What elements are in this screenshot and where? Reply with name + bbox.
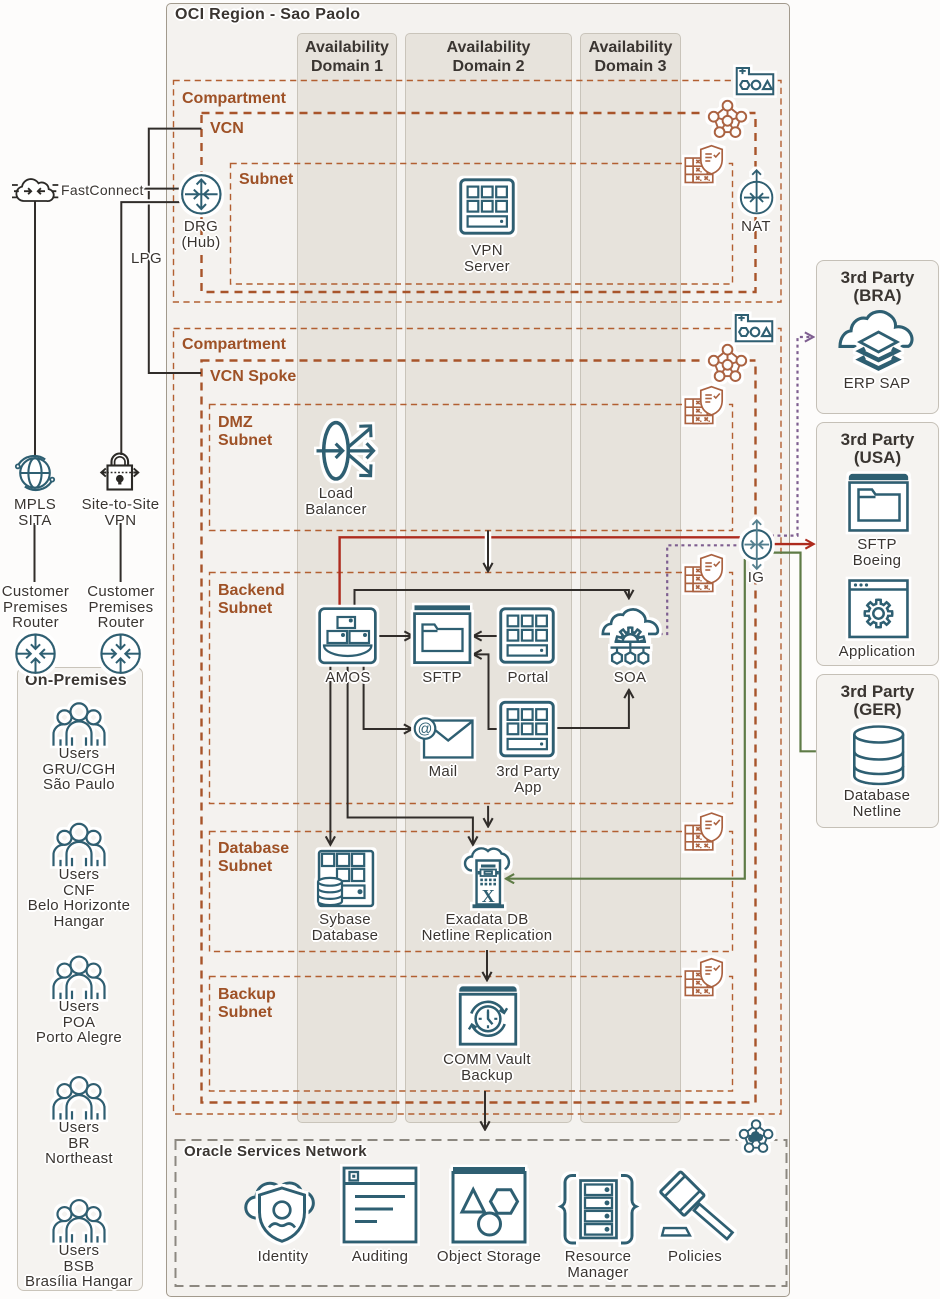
svg-text:X: X [482, 886, 495, 906]
svg-text:@: @ [418, 722, 433, 738]
